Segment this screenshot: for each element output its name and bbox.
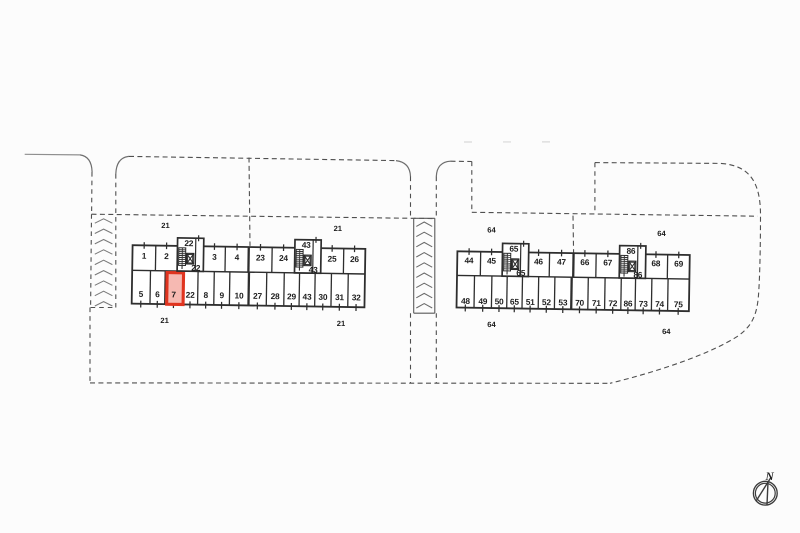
svg-text:22: 22 [186,290,196,300]
svg-text:46: 46 [534,256,544,266]
svg-text:66: 66 [580,257,590,267]
svg-text:74: 74 [655,299,665,309]
svg-text:25: 25 [328,254,338,264]
svg-text:71: 71 [592,298,602,308]
svg-text:53: 53 [558,297,568,307]
svg-text:9: 9 [219,290,224,300]
svg-text:50: 50 [495,296,505,306]
svg-text:47: 47 [557,257,567,267]
svg-text:75: 75 [674,299,684,309]
svg-text:24: 24 [279,253,289,263]
svg-text:21: 21 [334,224,343,233]
svg-text:64: 64 [487,320,496,329]
svg-text:72: 72 [608,298,618,308]
svg-text:67: 67 [603,257,613,267]
svg-text:10: 10 [235,290,245,300]
svg-text:86: 86 [626,246,636,256]
svg-text:69: 69 [674,259,684,269]
svg-text:32: 32 [352,292,362,302]
svg-text:7: 7 [171,289,176,299]
svg-text:27: 27 [253,291,263,301]
svg-text:26: 26 [350,254,360,264]
svg-text:49: 49 [478,296,488,306]
svg-text:43: 43 [303,292,313,302]
svg-text:68: 68 [651,258,661,268]
svg-text:48: 48 [461,296,471,306]
svg-text:21: 21 [161,221,170,230]
svg-text:70: 70 [575,298,585,308]
svg-text:86: 86 [633,270,643,280]
svg-text:44: 44 [464,255,474,265]
svg-text:52: 52 [542,297,552,307]
svg-text:2: 2 [164,251,169,261]
svg-text:22: 22 [191,263,201,273]
svg-text:65: 65 [509,244,519,254]
svg-text:64: 64 [487,226,496,235]
svg-text:28: 28 [271,291,281,301]
svg-text:64: 64 [657,229,666,238]
svg-text:73: 73 [639,299,649,309]
svg-text:N: N [764,471,774,483]
svg-text:23: 23 [256,252,266,262]
svg-text:4: 4 [235,252,240,262]
svg-text:45: 45 [487,256,497,266]
svg-text:64: 64 [662,327,671,336]
svg-text:21: 21 [337,319,346,328]
svg-text:43: 43 [309,265,319,275]
svg-text:3: 3 [212,252,217,262]
svg-text:86: 86 [623,298,633,308]
svg-text:31: 31 [335,292,345,302]
svg-text:5: 5 [139,289,144,299]
svg-text:65: 65 [510,297,520,307]
svg-text:43: 43 [302,240,312,250]
svg-text:22: 22 [184,238,194,248]
svg-text:30: 30 [318,292,328,302]
svg-text:1: 1 [142,251,147,261]
svg-text:29: 29 [287,291,297,301]
svg-text:8: 8 [204,290,209,300]
svg-text:21: 21 [160,316,169,325]
svg-text:51: 51 [526,297,536,307]
svg-text:65: 65 [516,268,526,278]
svg-text:6: 6 [155,289,160,299]
